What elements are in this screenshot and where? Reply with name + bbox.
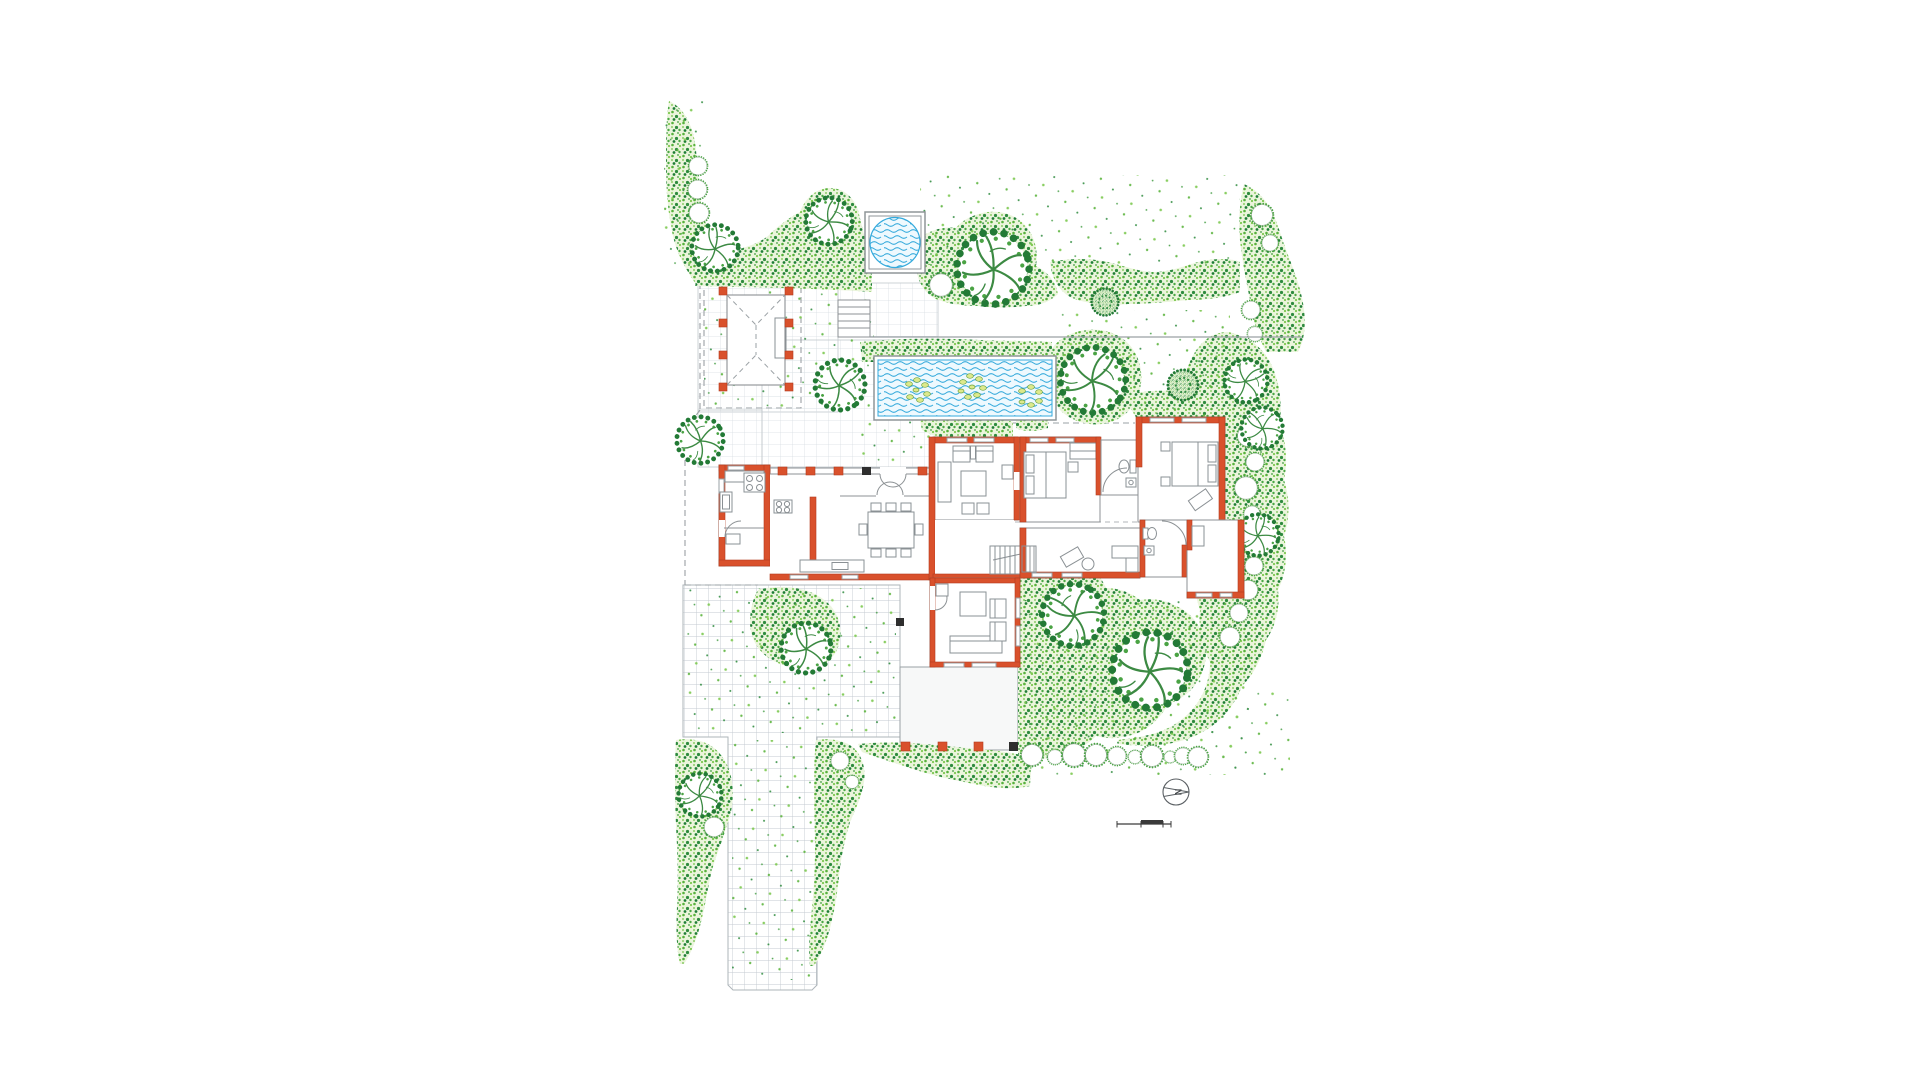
study	[1020, 528, 1140, 578]
bathroom-2	[1140, 520, 1187, 577]
rectangular-lily-pond	[874, 356, 1056, 420]
armchair	[990, 599, 1006, 618]
ottoman	[977, 503, 989, 514]
stool	[1082, 558, 1094, 570]
bedside-table	[1068, 462, 1078, 472]
pond-water	[878, 360, 1052, 416]
coffee-table	[961, 471, 986, 496]
cabinet	[938, 462, 951, 502]
north-label: N	[1173, 789, 1183, 796]
kitchen-wing	[719, 465, 770, 566]
armchair	[990, 622, 1006, 641]
hedge-northeast-corner	[1239, 184, 1305, 352]
tree	[692, 225, 738, 271]
scale-bar	[1117, 820, 1171, 828]
hedge-drive-east	[809, 739, 864, 966]
bedroom-wing	[1020, 417, 1244, 598]
bathroom-1	[1101, 440, 1138, 495]
scullery-bench	[726, 534, 740, 544]
pergola	[719, 287, 793, 391]
plunge-pool-water	[870, 218, 920, 268]
bedroom-2	[1136, 417, 1225, 522]
side-table	[1002, 465, 1013, 479]
north-arrow: N	[1163, 779, 1189, 805]
garden-room	[896, 578, 1020, 667]
side-table	[936, 584, 948, 596]
garden-steps	[838, 300, 870, 337]
loggia-porch-floor	[900, 667, 1018, 750]
ottoman	[962, 503, 974, 514]
open-dining-hall	[770, 467, 933, 580]
clipped-bush	[1168, 370, 1198, 400]
square-plunge-pool	[865, 212, 925, 273]
desk	[1112, 546, 1138, 558]
hedge-drive-west	[675, 739, 733, 964]
site-plan-drawing: N	[0, 0, 1920, 1080]
site-plan-sheet: N	[0, 0, 1920, 1080]
clipped-bush	[1092, 289, 1119, 316]
coffee-table	[960, 592, 986, 616]
guest-room	[1187, 520, 1244, 598]
hedge-north-east-band	[1050, 259, 1240, 305]
